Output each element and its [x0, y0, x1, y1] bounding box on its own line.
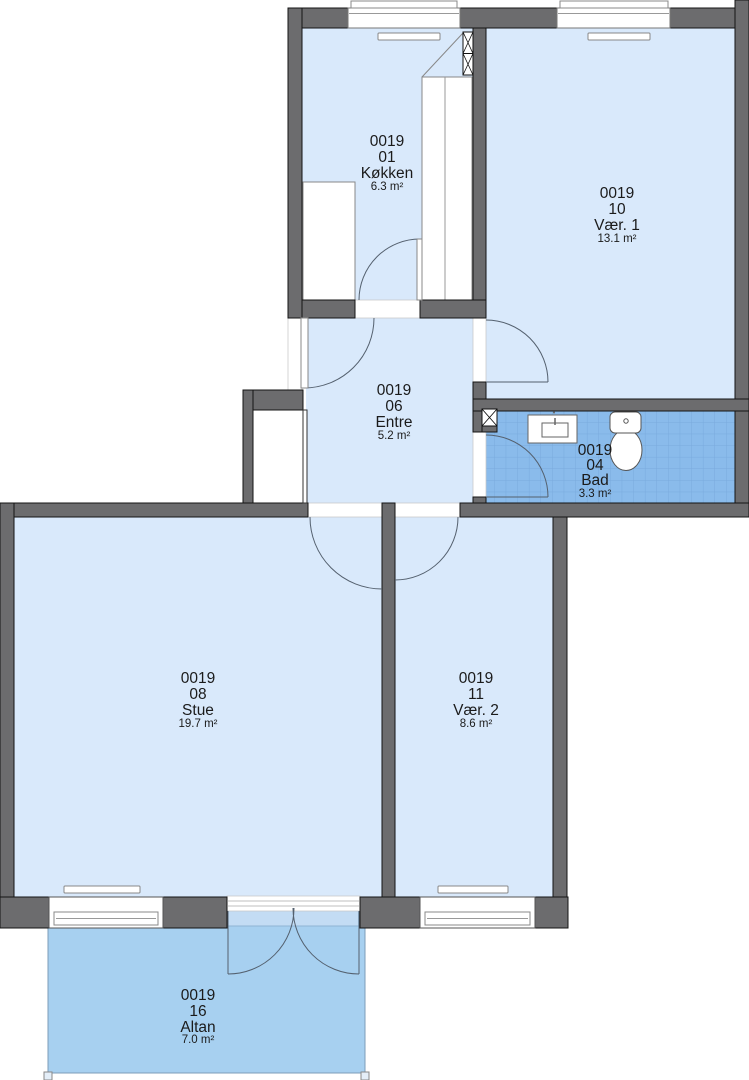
- wall-koekken-vaer1: [473, 28, 486, 300]
- wall-top-b: [460, 8, 557, 28]
- floor-plan: 0019 01 Køkken 6.3 m² 0019 10 Vær. 1 13.…: [0, 0, 749, 1080]
- room-area: 7.0 m²: [182, 1034, 215, 1046]
- room-name: Stue: [182, 702, 214, 719]
- room-code: 0019: [370, 133, 404, 150]
- door-leaf-koekken: [417, 239, 422, 300]
- wall-bottom-pier3: [360, 897, 420, 928]
- room-name: Vær. 1: [594, 217, 640, 234]
- wall-koekken-entre-a: [302, 300, 355, 318]
- room-code: 0019: [600, 185, 634, 202]
- room-name: Vær. 2: [453, 702, 499, 719]
- wall-bottom-pier1: [0, 897, 49, 928]
- wall-under-shaft: [482, 426, 497, 432]
- duct-shaft-bad-icon: [482, 409, 497, 426]
- room-area: 6.3 m²: [371, 181, 404, 193]
- wall-koekken-entre-b: [420, 300, 486, 318]
- wall-entre-vaer1-stub: [473, 382, 486, 400]
- room-area: 5.2 m²: [378, 430, 411, 442]
- room-name: Entre: [375, 414, 412, 431]
- room-area: 19.7 m²: [179, 718, 218, 730]
- kitchen-counter: [303, 182, 355, 300]
- wall-shaft-jamb: [473, 411, 482, 432]
- threshold-vaer1-door: [473, 318, 486, 382]
- room-code: 0019: [181, 987, 215, 1004]
- room-number: 08: [189, 686, 206, 703]
- room-area: 8.6 m²: [460, 718, 493, 730]
- threshold-stue-door: [308, 503, 382, 517]
- room-number: 11: [468, 686, 484, 703]
- wall-entre-stue-a: [0, 503, 308, 517]
- wall-east-outer: [735, 0, 749, 517]
- room-name: Bad: [581, 472, 609, 489]
- threshold-bad-door: [473, 431, 486, 497]
- wall-stue-vaer2: [382, 503, 395, 928]
- room-area: 3.3 m²: [579, 488, 612, 500]
- radiator-vaer1: [588, 33, 650, 40]
- duct-shaft-koekken-icon: [463, 32, 473, 75]
- wall-niche-west: [243, 390, 253, 517]
- threshold-entrance-door: [288, 318, 302, 390]
- window-vaer1: [557, 8, 670, 28]
- room-area: 13.1 m²: [598, 233, 637, 245]
- balcony-post-right: [361, 1072, 369, 1080]
- niche-east-edge: [303, 410, 307, 503]
- sink-icon: [528, 412, 577, 444]
- door-leaf-entrance: [301, 318, 308, 388]
- wall-bottom-pier2: [163, 897, 227, 928]
- window-koekken-sill: [351, 1, 457, 8]
- room-code: 0019: [181, 670, 215, 687]
- threshold-koekken-door: [355, 300, 420, 318]
- window-koekken: [348, 8, 460, 28]
- window-vaer1-sill: [560, 1, 668, 8]
- wall-vaer1-bad: [473, 399, 749, 411]
- wall-west-stue: [0, 503, 14, 928]
- room-code: 0019: [377, 382, 411, 399]
- radiator-vaer2: [438, 886, 508, 893]
- toilet-icon: [610, 412, 642, 471]
- room-number: 10: [608, 201, 626, 218]
- radiator-stue: [64, 886, 140, 893]
- radiator-koekken: [378, 33, 440, 40]
- balcony-post-left: [44, 1072, 52, 1080]
- wall-west-koekken: [288, 8, 302, 318]
- room-code: 0019: [459, 670, 493, 687]
- room-number: 01: [378, 149, 395, 166]
- threshold-vaer2-door: [395, 503, 460, 517]
- wall-bad-south: [460, 503, 749, 517]
- kitchen-cabinet-column: [422, 77, 472, 300]
- wall-bottom-pier4: [535, 897, 568, 928]
- room-number: 16: [189, 1003, 206, 1020]
- wall-east-vaer2: [553, 517, 567, 928]
- room-name: Køkken: [361, 165, 414, 182]
- room-number: 06: [385, 398, 402, 415]
- exterior-niche: [253, 410, 303, 503]
